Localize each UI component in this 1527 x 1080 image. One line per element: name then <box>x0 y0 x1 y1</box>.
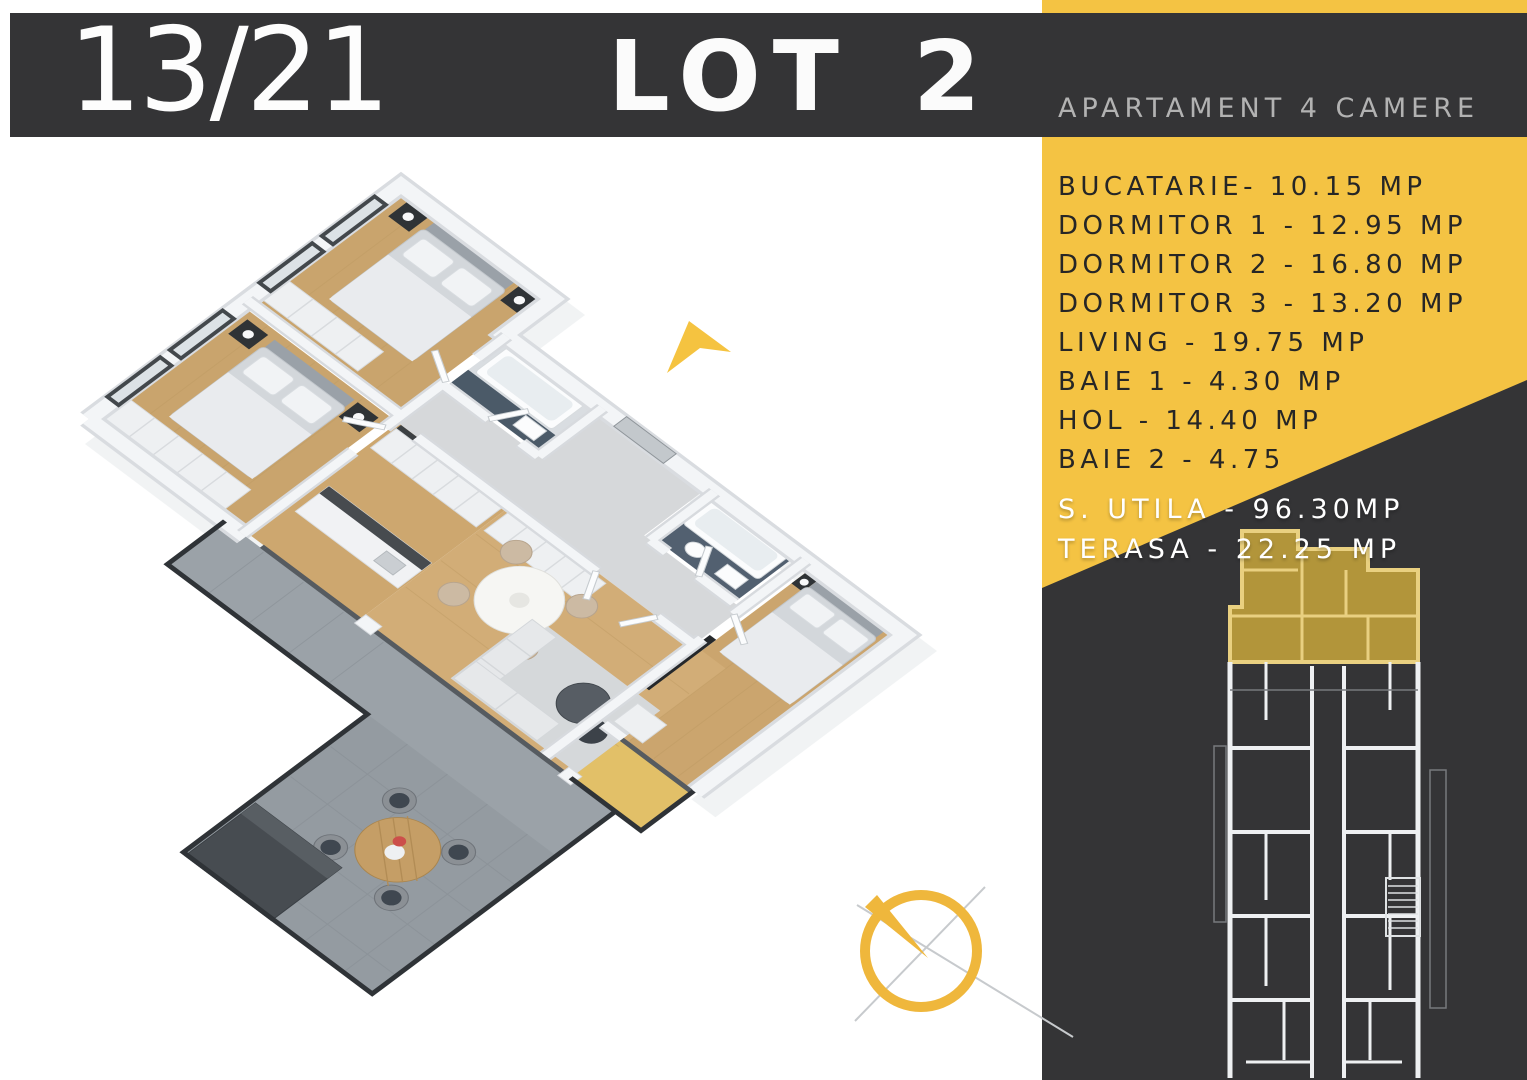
room-list-item: DORMITOR 2 - 16.80 MP <box>1058 246 1467 285</box>
room-list-item: BAIE 2 - 4.75 <box>1058 441 1467 480</box>
room-list-item: HOL - 14.40 MP <box>1058 402 1467 441</box>
building-walls <box>1230 662 1418 1078</box>
header-bar: 13/21 LOT2 APARTAMENT 4 CAMERE <box>10 13 1527 137</box>
area-summary: S. UTILA - 96.30MP TERASA - 22.25 MP <box>1058 490 1404 570</box>
inset-detail-lines <box>1214 690 1446 1008</box>
lot-number: 2 <box>913 17 993 137</box>
room-list-item: BUCATARIE- 10.15 MP <box>1058 168 1467 207</box>
room-list-item: BAIE 1 - 4.30 MP <box>1058 363 1467 402</box>
floor-plan-3d <box>0 180 961 1016</box>
north-arrow-icon <box>667 321 731 373</box>
building-plan-inset <box>1214 531 1446 1078</box>
compass-icon <box>855 887 1073 1037</box>
room-list-item: DORMITOR 3 - 13.20 MP <box>1058 285 1467 324</box>
page-number: 13/21 <box>68 9 387 133</box>
lot-title: LOT2 <box>608 17 992 137</box>
summary-terasa: TERASA - 22.25 MP <box>1058 530 1404 570</box>
lot-label: LOT <box>608 20 851 133</box>
room-list-item: LIVING - 19.75 MP <box>1058 324 1467 363</box>
room-list: BUCATARIE- 10.15 MP DORMITOR 1 - 12.95 M… <box>1058 168 1467 480</box>
poster-canvas: 13/21 LOT2 APARTAMENT 4 CAMERE BUCATARIE… <box>0 0 1527 1080</box>
summary-utila: S. UTILA - 96.30MP <box>1058 490 1404 530</box>
apartment-subtitle: APARTAMENT 4 CAMERE <box>1058 93 1479 124</box>
stairwell <box>1386 878 1420 936</box>
room-list-item: DORMITOR 1 - 12.95 MP <box>1058 207 1467 246</box>
